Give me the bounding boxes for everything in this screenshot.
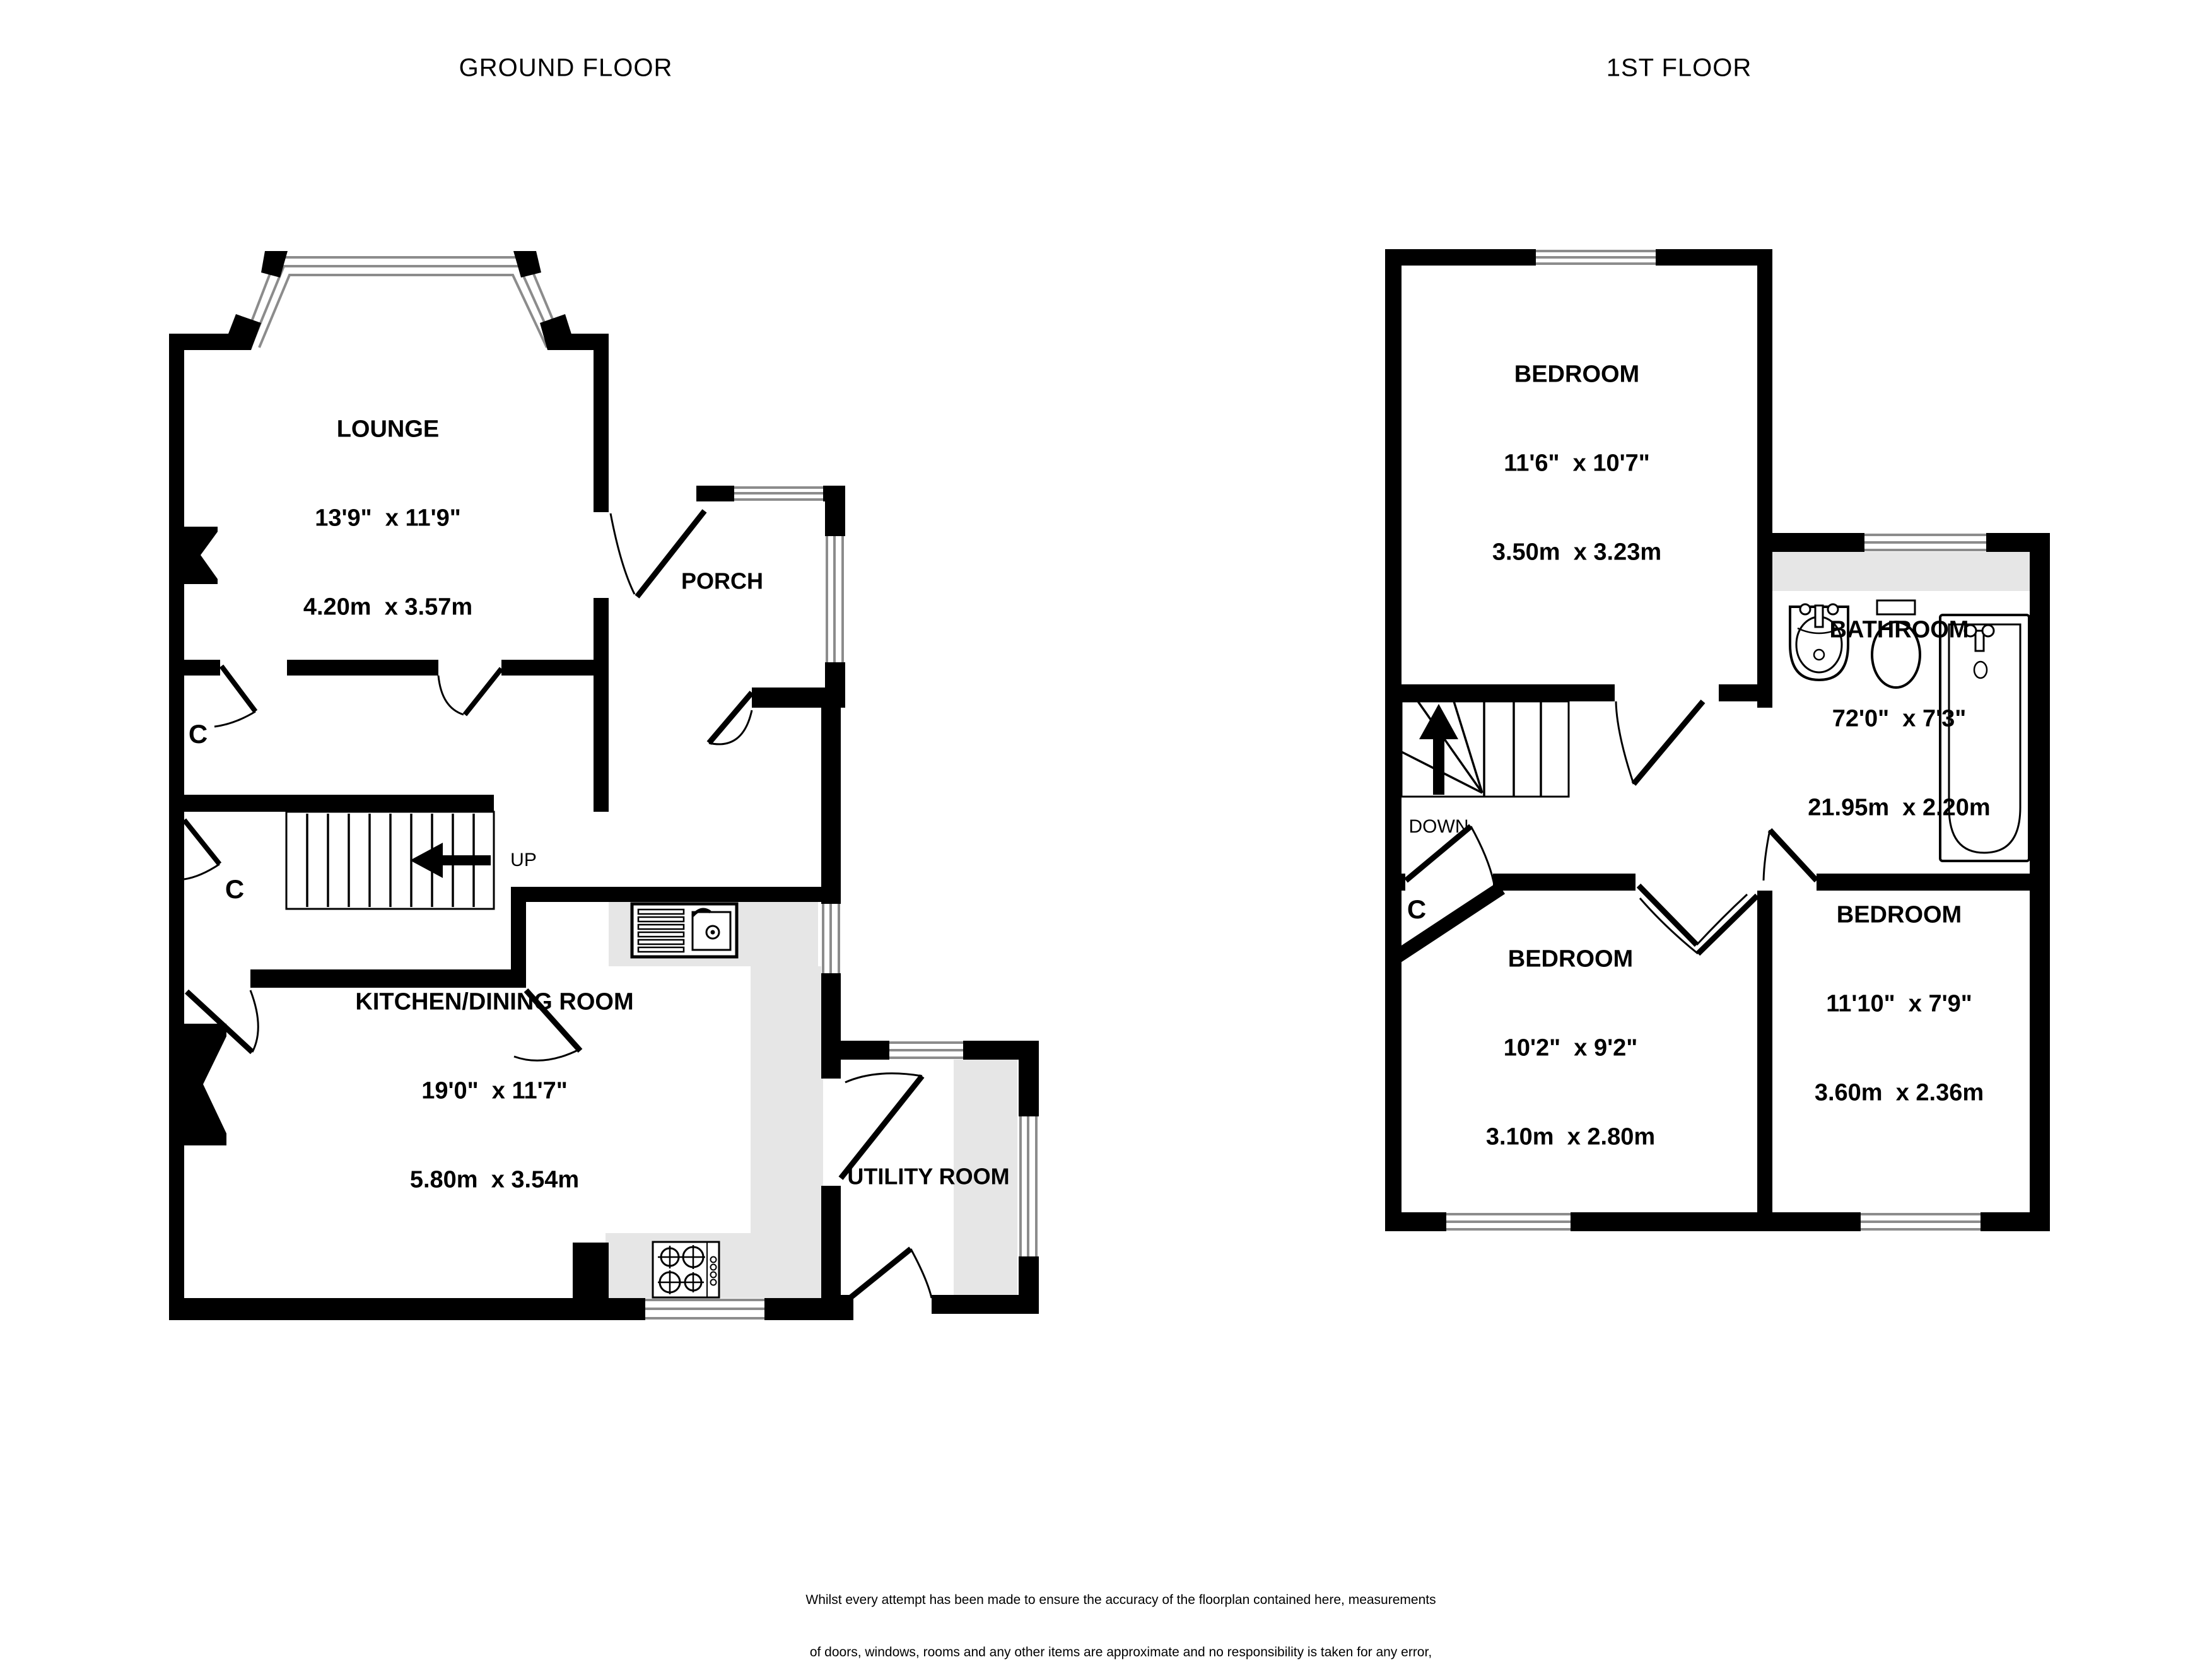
room-label-bedroom1: BEDROOM 11'6" x 10'7" 3.50m x 3.23m: [1492, 301, 1661, 627]
room-dim-imperial: 13'9" x 11'9": [303, 504, 472, 534]
fireplace-kitchen: [184, 1024, 226, 1145]
room-name: BATHROOM: [1808, 616, 1990, 645]
room-label-bedroom3: BEDROOM 11'10" x 7'9" 3.60m x 2.36m: [1815, 841, 1984, 1167]
stairs-down-label: DOWN: [1409, 816, 1469, 838]
kitchen-counter: [606, 899, 823, 1298]
disclaimer-line: of doors, windows, rooms and any other i…: [802, 1644, 1440, 1661]
room-dim-imperial: 19'0" x 11'7": [355, 1077, 633, 1106]
stairs-first: [1402, 701, 1569, 797]
room-label-bedroom2: BEDROOM 10'2" x 9'2" 3.10m x 2.80m: [1486, 886, 1655, 1212]
room-dim-imperial: 11'6" x 10'7": [1492, 449, 1661, 479]
closet-label-1f: C: [1407, 894, 1426, 925]
disclaimer-line: Whilst every attempt has been made to en…: [802, 1591, 1440, 1609]
room-label-kitchen-dining: KITCHEN/DINING ROOM 19'0" x 11'7" 5.80m …: [355, 928, 633, 1255]
room-label-utility: UTILITY ROOM: [847, 1162, 1009, 1191]
closet-label-gf-2: C: [225, 874, 244, 904]
first-floor-title: 1ST FLOOR: [1606, 54, 1752, 83]
room-dim-metric: 21.95m x 2.20m: [1808, 793, 1990, 823]
room-dim-imperial: 10'2" x 9'2": [1486, 1034, 1655, 1063]
fireplace-lounge: [184, 527, 218, 584]
room-dim-metric: 3.10m x 2.80m: [1486, 1123, 1655, 1152]
room-name: BEDROOM: [1486, 945, 1655, 974]
ground-floor-title: GROUND FLOOR: [459, 54, 673, 83]
room-dim-metric: 4.20m x 3.57m: [303, 593, 472, 623]
room-dim-metric: 3.60m x 2.36m: [1815, 1079, 1984, 1108]
room-label-porch: PORCH: [681, 566, 763, 596]
room-dim-metric: 5.80m x 3.54m: [355, 1166, 633, 1195]
room-dim-imperial: 11'10" x 7'9": [1815, 990, 1984, 1019]
disclaimer-text: Whilst every attempt has been made to en…: [802, 1557, 1440, 1662]
room-dim-metric: 3.50m x 3.23m: [1492, 538, 1661, 568]
stove-icon: [653, 1242, 719, 1297]
room-dim-imperial: 72'0" x 7'3": [1808, 705, 1990, 734]
room-name: LOUNGE: [303, 415, 472, 445]
room-name: BEDROOM: [1492, 360, 1661, 390]
bay-window: [222, 251, 576, 350]
room-label-bathroom: BATHROOM 72'0" x 7'3" 21.95m x 2.20m: [1808, 556, 1990, 882]
room-label-lounge: LOUNGE 13'9" x 11'9" 4.20m x 3.57m: [303, 356, 472, 682]
stairs-ground: [286, 812, 494, 909]
room-name: BEDROOM: [1815, 901, 1984, 930]
floorplan-page: GROUND FLOOR 1ST FLOOR LOUNGE 13'9" x 11…: [0, 0, 2212, 1662]
sink-icon: [632, 904, 737, 957]
closet-label-gf-1: C: [189, 719, 208, 749]
stairs-up-label: UP: [510, 850, 537, 871]
room-name: KITCHEN/DINING ROOM: [355, 988, 633, 1017]
